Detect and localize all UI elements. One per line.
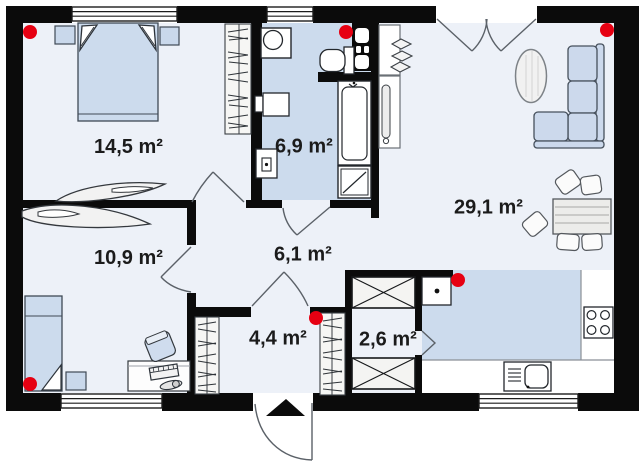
svg-text:4,4 m²: 4,4 m² (249, 328, 307, 350)
svg-text:6,1 m²: 6,1 m² (274, 244, 332, 266)
svg-text:10,9 m²: 10,9 m² (94, 247, 163, 269)
svg-text:14,5 m²: 14,5 m² (94, 136, 163, 158)
svg-text:6,9 m²: 6,9 m² (275, 136, 333, 158)
svg-text:2,6 m²: 2,6 m² (359, 329, 417, 351)
svg-text:29,1 m²: 29,1 m² (454, 197, 523, 219)
